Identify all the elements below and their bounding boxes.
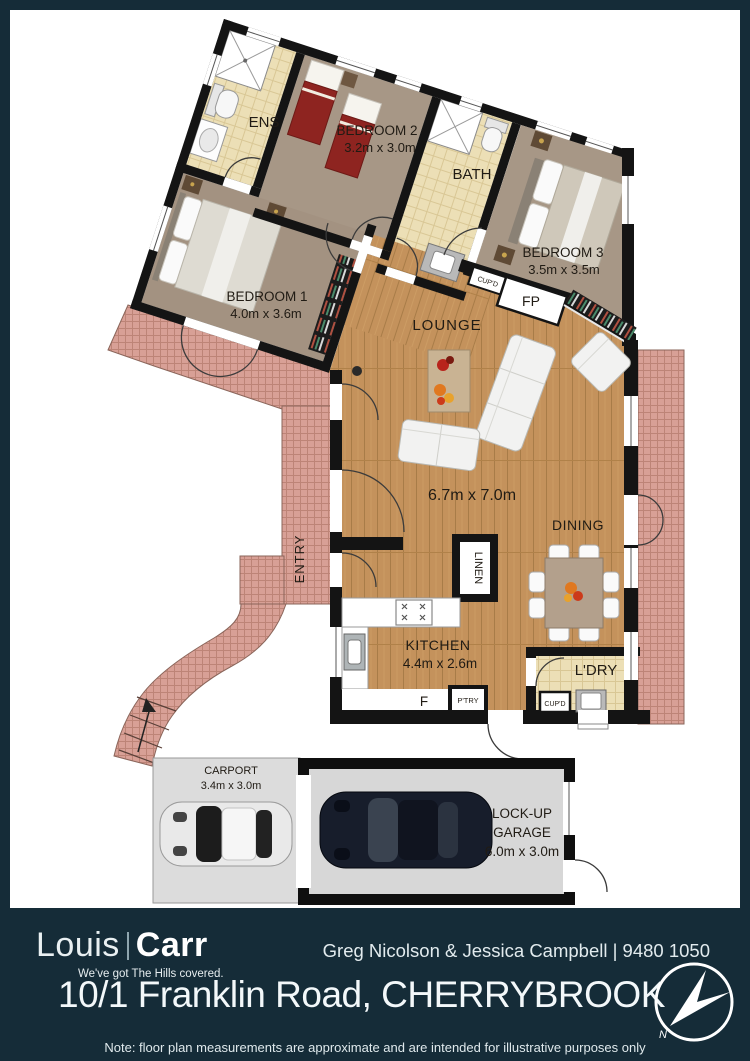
garage-dims: 6.0m x 3.0m bbox=[485, 844, 559, 859]
floor-lamp bbox=[352, 366, 362, 376]
kitchen-cooktop bbox=[396, 600, 432, 625]
laundry-step bbox=[578, 724, 608, 729]
linen-label: LINEN bbox=[472, 552, 484, 584]
laundry-label: L'DRY bbox=[575, 662, 618, 679]
property-address: 10/1 Franklin Road, CHERRYBROOK bbox=[58, 974, 665, 1016]
dining-label: DINING bbox=[552, 517, 604, 533]
back-door-gap bbox=[488, 710, 523, 724]
bath-label: BATH bbox=[453, 166, 492, 183]
pantry-label: P'TRY bbox=[457, 696, 478, 705]
laundry-sink bbox=[576, 690, 606, 712]
kitchen-dims: 4.4m x 2.6m bbox=[403, 656, 477, 671]
ensuite-label: ENS bbox=[249, 114, 280, 131]
logo-divider bbox=[127, 932, 129, 960]
fridge-space bbox=[342, 689, 448, 710]
floor-plan: CUP'D FP CUP'D LINEN bbox=[0, 0, 750, 908]
entry-label: ENTRY bbox=[292, 535, 307, 584]
lounge-dims: 6.7m x 7.0m bbox=[428, 487, 516, 504]
carport-label: CARPORT bbox=[204, 765, 258, 777]
logo-louis: Louis bbox=[36, 928, 120, 962]
bedroom1-label: BEDROOM 1 bbox=[226, 289, 307, 304]
agency-logo: Louis Carr bbox=[36, 928, 208, 962]
fireplace-label: FP bbox=[522, 293, 540, 309]
disclaimer-note: Note: floor plan measurements are approx… bbox=[0, 1040, 750, 1055]
laundry-cupboard: CUP'D bbox=[540, 692, 570, 712]
laundry-cupboard-label: CUP'D bbox=[544, 701, 565, 708]
pantry: P'TRY bbox=[448, 685, 488, 714]
kitchen-sink bbox=[344, 634, 365, 670]
carport-dims: 3.4m x 3.0m bbox=[201, 780, 262, 792]
coffee-table bbox=[428, 350, 470, 412]
laundry-exit-gap bbox=[578, 710, 608, 724]
laundry-door-gap bbox=[526, 658, 536, 686]
bedroom1-dims: 4.0m x 3.6m bbox=[230, 306, 302, 321]
kitchen-label: KITCHEN bbox=[406, 637, 471, 653]
car-white bbox=[160, 802, 292, 866]
compass-icon: N bbox=[650, 958, 738, 1046]
footer-banner: Louis Carr We've got The Hills covered. … bbox=[0, 908, 750, 1061]
car-dark bbox=[320, 792, 492, 868]
fridge-label: F bbox=[420, 694, 428, 709]
garage-label-line1: LOCK-UP bbox=[492, 806, 552, 821]
bedroom3-dims: 3.5m x 3.5m bbox=[528, 262, 600, 277]
bedroom2-dims: 3.2m x 3.0m bbox=[344, 140, 416, 155]
bedroom2-label: BEDROOM 2 bbox=[336, 123, 417, 138]
patio-right bbox=[638, 350, 684, 724]
bedroom3-label: BEDROOM 3 bbox=[522, 245, 603, 260]
logo-carr: Carr bbox=[136, 928, 208, 962]
lounge-label: LOUNGE bbox=[412, 317, 481, 334]
garage-label-line2: GARAGE bbox=[493, 825, 551, 840]
